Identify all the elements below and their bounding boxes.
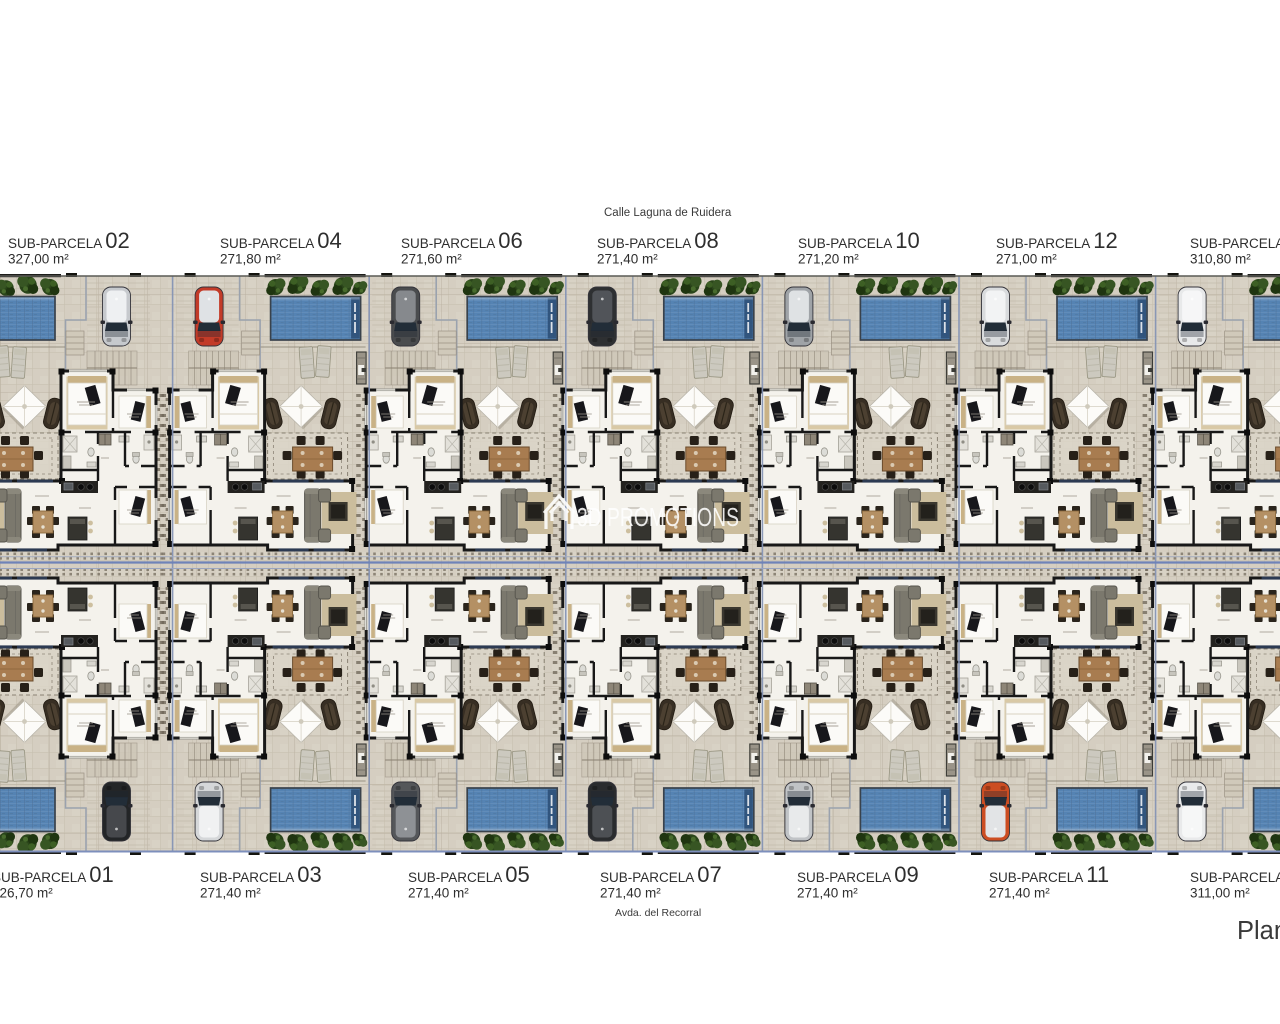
- svg-text:Planta Baja: Planta Baja: [1237, 917, 1280, 945]
- svg-text:271,40 m²: 271,40 m²: [600, 886, 661, 901]
- svg-text:271,00 m²: 271,00 m²: [996, 252, 1057, 267]
- svg-text:Calle Laguna de Ruidera: Calle Laguna de Ruidera: [604, 207, 732, 219]
- svg-text:327,00 m²: 327,00 m²: [8, 252, 69, 267]
- svg-text:271,40 m²: 271,40 m²: [408, 886, 469, 901]
- svg-text:3D PROMOTIONS: 3D PROMOTIONS: [577, 502, 739, 532]
- svg-text:271,40 m²: 271,40 m²: [597, 252, 658, 267]
- svg-text:271,40 m²: 271,40 m²: [989, 886, 1050, 901]
- svg-text:271,80 m²: 271,80 m²: [220, 252, 281, 267]
- svg-text:271,40 m²: 271,40 m²: [797, 886, 858, 901]
- svg-text:326,70 m²: 326,70 m²: [0, 886, 53, 901]
- svg-text:271,20 m²: 271,20 m²: [798, 252, 859, 267]
- svg-text:271,60 m²: 271,60 m²: [401, 252, 462, 267]
- svg-text:311,00 m²: 311,00 m²: [1190, 886, 1250, 901]
- svg-text:271,40 m²: 271,40 m²: [200, 886, 261, 901]
- svg-text:310,80 m²: 310,80 m²: [1190, 252, 1251, 267]
- svg-text:Avda. del Recorral: Avda. del Recorral: [615, 907, 701, 919]
